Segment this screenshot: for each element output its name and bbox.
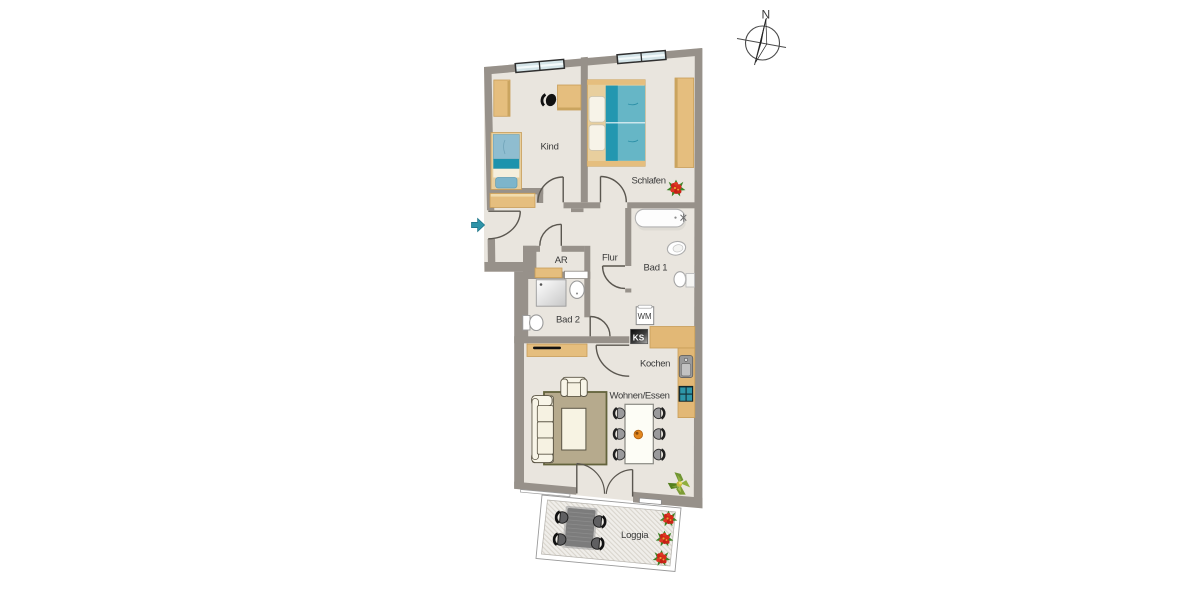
svg-text:Schlafen: Schlafen (632, 175, 666, 186)
svg-text:Flur: Flur (602, 252, 618, 263)
svg-text:Kochen: Kochen (640, 358, 670, 369)
svg-text:Wohnen/Essen: Wohnen/Essen (610, 390, 670, 401)
svg-text:Bad 2: Bad 2 (556, 314, 580, 325)
svg-text:Kind: Kind (541, 141, 559, 152)
svg-text:Bad 1: Bad 1 (644, 262, 668, 273)
svg-text:KS: KS (633, 333, 645, 342)
svg-text:AR: AR (555, 255, 568, 266)
svg-text:WM: WM (638, 312, 652, 321)
svg-text:Loggia: Loggia (621, 530, 649, 541)
svg-text:N: N (762, 7, 771, 21)
